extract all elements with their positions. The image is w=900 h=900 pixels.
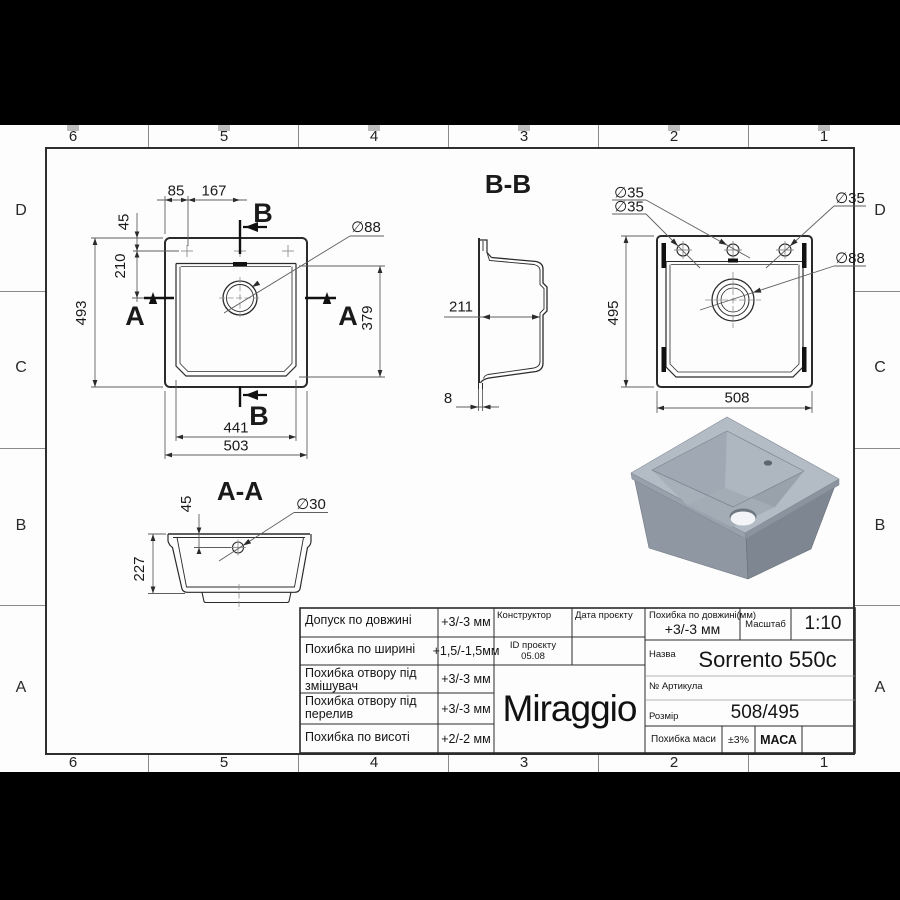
dim-211: 211 [449, 299, 473, 316]
section-aa-title: A-A [217, 476, 263, 506]
dim-379: 379 [359, 305, 376, 330]
overflow-mark [233, 262, 247, 266]
tolerance-value-5: +2/-2 мм [438, 729, 494, 749]
dim-45: 45 [116, 214, 133, 231]
dim-493: 493 [73, 300, 90, 325]
constructor-label: Конструктор [497, 610, 551, 621]
dim-227: 227 [131, 556, 148, 581]
miraggio-logo: Miraggio [494, 668, 645, 750]
dia88-label: ∅88 [835, 250, 865, 267]
section-b-label-top: B [253, 198, 273, 228]
scale-label: Масштаб [740, 608, 791, 640]
section-aa-view: A-A 45 ∅30 227 [131, 476, 328, 610]
corner-clip [662, 243, 667, 268]
drawing-sheet-stage: 6 5 4 3 2 1 6 5 4 3 2 1 D C B A D C B A [0, 0, 900, 900]
tolerance-value-3: +3/-3 мм [438, 669, 494, 689]
article-label: № Артикула [649, 681, 703, 692]
project-id-label: ID проєкту [494, 640, 572, 651]
dim-45-aa: 45 [178, 496, 195, 513]
size-value: 508/495 [700, 702, 830, 724]
project-date-label: Дата проєкту [575, 610, 633, 621]
dim-508: 508 [724, 390, 749, 407]
length-tolerance-value: +3/-3 мм [645, 621, 740, 637]
faucet-holes [674, 241, 794, 259]
dim-495: 495 [605, 300, 622, 325]
dim-210: 210 [112, 253, 129, 278]
mass-tolerance-label: Похибка маси [645, 726, 722, 753]
dim-85: 85 [168, 183, 185, 200]
section-b-label-bottom: B [249, 401, 269, 431]
size-label: Розмір [649, 711, 678, 722]
project-id-value: 05.08 [494, 651, 572, 662]
tolerance-value-4: +3/-3 мм [438, 699, 494, 719]
tolerance-label-3: Похибка отвору під змішувач [305, 667, 435, 693]
dim-167: 167 [201, 183, 226, 200]
tolerance-value-1: +3/-3 мм [438, 612, 494, 632]
section-a-label-right: A [338, 301, 358, 331]
tolerance-label-4: Похибка отвору під перелив [305, 695, 435, 721]
overflow-hole-3d [764, 460, 772, 465]
tolerance-label-1: Допуск по довжині [305, 614, 435, 627]
corner-clip [662, 347, 667, 372]
dia35-label-3: ∅35 [835, 190, 865, 207]
scale-value: 1:10 [791, 608, 855, 640]
faucet-hole-marks [181, 245, 294, 257]
name-value: Sorrento 550c [680, 646, 855, 674]
drawing-canvas: ∅88 85 167 45 210 [0, 0, 900, 900]
dia30-label: ∅30 [296, 496, 326, 513]
name-label: Назва [649, 649, 676, 660]
plan-view: ∅88 85 167 45 210 [73, 183, 385, 460]
bottom-view: ∅35 ∅35 ∅35 ∅88 495 [605, 185, 866, 414]
tolerance-label-5: Похибка по висоті [305, 731, 435, 744]
mass-label: МАСА [755, 726, 802, 753]
mass-tolerance-value: ±3% [722, 726, 755, 753]
corner-clip [802, 347, 807, 372]
overflow-mark [728, 259, 738, 263]
dim-441: 441 [223, 420, 248, 437]
tolerance-value-2: +1,5/-1,5мм [438, 641, 494, 661]
dia88-label: ∅88 [351, 219, 381, 236]
section-bb-view: B-B 211 8 [444, 169, 547, 411]
dia35-label-2: ∅35 [614, 199, 644, 216]
dim-503: 503 [223, 438, 248, 455]
dim-8: 8 [444, 390, 452, 407]
sink-3d-render [631, 417, 839, 579]
section-a-label-left: A [125, 301, 145, 331]
tolerance-label-2: Похибка по ширині [305, 643, 435, 656]
corner-clip [802, 243, 807, 268]
section-bb-title: B-B [485, 169, 531, 199]
